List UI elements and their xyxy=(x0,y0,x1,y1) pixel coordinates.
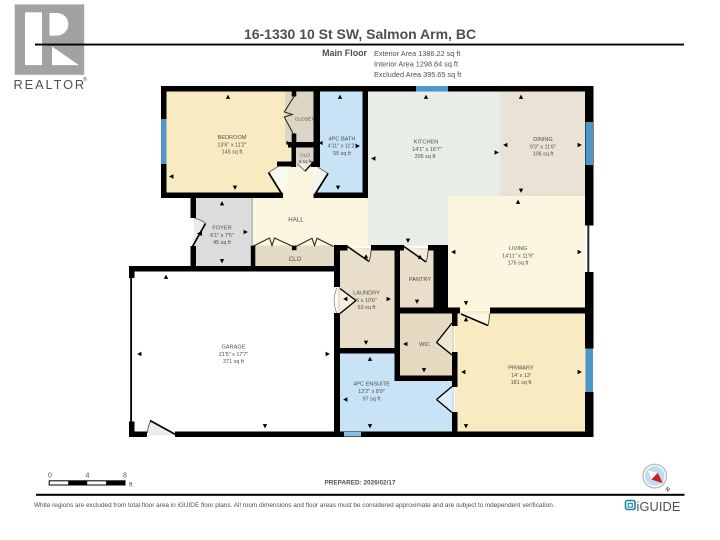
svg-text:Excluded Area 395.65 sq ft: Excluded Area 395.65 sq ft xyxy=(374,70,461,79)
svg-text:REALTOR: REALTOR xyxy=(14,77,87,92)
svg-text:PANTRY: PANTRY xyxy=(409,277,431,283)
svg-text:106 sq ft: 106 sq ft xyxy=(533,152,554,158)
svg-text:BEDROOM: BEDROOM xyxy=(218,135,247,141)
svg-text:CLO: CLO xyxy=(300,153,310,159)
svg-text:97 sq ft: 97 sq ft xyxy=(363,396,381,402)
svg-text:14'1" x 16'7": 14'1" x 16'7" xyxy=(412,147,442,153)
svg-text:21'5" x 17'7": 21'5" x 17'7" xyxy=(219,352,249,358)
svg-text:HALL: HALL xyxy=(288,217,304,224)
svg-text:16-1330 10 St SW, Salmon Arm,: 16-1330 10 St SW, Salmon Arm, BC xyxy=(244,26,476,42)
svg-text:4PC BATH: 4PC BATH xyxy=(329,136,356,142)
svg-text:14'11" x 11'9": 14'11" x 11'9" xyxy=(502,253,534,259)
svg-text:WIC: WIC xyxy=(419,342,430,348)
svg-text:iGUIDE: iGUIDE xyxy=(637,499,681,514)
svg-text:6'1" x 7'5": 6'1" x 7'5" xyxy=(210,233,234,239)
svg-text:181 sq ft: 181 sq ft xyxy=(511,380,532,386)
svg-text:CLOSET: CLOSET xyxy=(295,116,314,122)
svg-text:12'2" x 8'9": 12'2" x 8'9" xyxy=(358,389,385,395)
svg-text:6 x 10'6": 6 x 10'6" xyxy=(356,298,377,304)
svg-text:14' x 13': 14' x 13' xyxy=(511,373,531,379)
svg-text:LAUNDRY: LAUNDRY xyxy=(353,291,380,297)
svg-text:LIVING: LIVING xyxy=(509,246,527,252)
svg-text:8: 8 xyxy=(123,473,127,480)
svg-text:13'6" x 11'2": 13'6" x 11'2" xyxy=(217,142,246,148)
svg-text:White regions are excluded fro: White regions are excluded from total fl… xyxy=(34,502,555,509)
svg-text:175 sq ft: 175 sq ft xyxy=(508,261,529,267)
svg-text:PREPARED: 2026/02/17: PREPARED: 2026/02/17 xyxy=(325,480,396,487)
svg-text:KITCHEN: KITCHEN xyxy=(414,140,439,146)
svg-text:4'11" x 11'2": 4'11" x 11'2" xyxy=(328,144,357,150)
svg-text:PRIMARY: PRIMARY xyxy=(508,366,534,372)
svg-text:DINING: DINING xyxy=(533,137,553,143)
svg-text:Exterior Area 1386.22 sq ft: Exterior Area 1386.22 sq ft xyxy=(374,49,460,58)
svg-text:371 sq ft: 371 sq ft xyxy=(223,359,244,365)
svg-text:CLO: CLO xyxy=(289,256,302,263)
svg-text:4: 4 xyxy=(86,473,90,480)
svg-text:ft: ft xyxy=(129,482,133,489)
svg-text:205 sq ft: 205 sq ft xyxy=(415,154,436,160)
svg-text:0: 0 xyxy=(48,473,52,480)
svg-text:®: ® xyxy=(83,76,87,83)
svg-text:4PC ENSUITE: 4PC ENSUITE xyxy=(353,382,390,388)
svg-text:63 sq ft: 63 sq ft xyxy=(358,305,376,311)
svg-text:55 sq ft: 55 sq ft xyxy=(333,151,351,157)
svg-text:Interior Area 1298.84 sq ft: Interior Area 1298.84 sq ft xyxy=(374,59,458,68)
svg-text:3 sq ft: 3 sq ft xyxy=(298,159,312,165)
svg-text:145 sq ft: 145 sq ft xyxy=(222,150,243,156)
svg-text:9'3" x 11'6": 9'3" x 11'6" xyxy=(530,144,556,150)
svg-text:FOYER: FOYER xyxy=(212,226,231,232)
svg-text:GARAGE: GARAGE xyxy=(222,345,246,351)
svg-text:45 sq ft: 45 sq ft xyxy=(213,240,231,246)
svg-text:Main Floor: Main Floor xyxy=(322,48,367,58)
